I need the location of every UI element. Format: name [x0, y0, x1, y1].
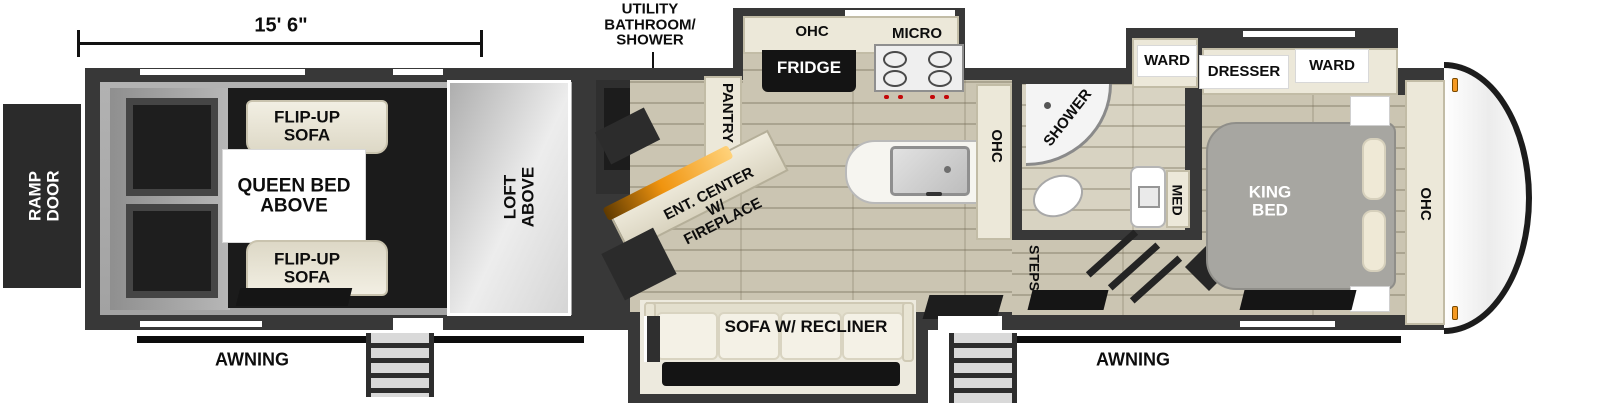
awning-bar-left — [137, 336, 584, 343]
bedroom-ohc-label: OHC — [1417, 187, 1433, 220]
stove-knob — [944, 95, 949, 99]
king-bed-label: KING BED — [1239, 183, 1301, 218]
stove-knob — [898, 95, 903, 99]
nightstand-top — [1350, 96, 1390, 126]
steps-label: STEPS — [1027, 245, 1042, 291]
awning-bar-right — [1017, 336, 1401, 343]
garage-door-gap — [393, 318, 443, 330]
window-gap — [1240, 321, 1335, 327]
ramp-window-bottom — [126, 204, 218, 298]
stove-knob — [930, 95, 935, 99]
bath-vanity-sink — [1138, 186, 1160, 208]
stove-burner — [883, 70, 907, 87]
sink-faucet — [926, 192, 942, 196]
queen-bed-label: QUEEN BED ABOVE — [232, 176, 356, 216]
flip-up-sofa-top-label: FLIP-UP SOFA — [261, 108, 353, 143]
dimension-tick-right — [480, 30, 483, 57]
loft-label: LOFT ABOVE — [501, 161, 536, 233]
window-gap — [1243, 31, 1355, 37]
clearance-light-top — [1452, 78, 1458, 92]
pantry-label: PANTRY — [719, 83, 735, 143]
fridge-label: FRIDGE — [777, 59, 841, 77]
micro-label: MICRO — [892, 26, 942, 42]
bed-pillow-top — [1362, 138, 1386, 200]
sofa-rug — [662, 362, 900, 386]
dimension-line — [77, 42, 483, 45]
clearance-light-bottom — [1452, 306, 1458, 320]
garage-entry-mat — [236, 288, 352, 306]
rv-floorplan: 15' 6" UTILITY BATHROOM/ SHOWER RAMP DOO… — [0, 0, 1600, 411]
bath-ward-label: WARD — [1144, 53, 1190, 69]
flip-up-sofa-bottom-label: FLIP-UP SOFA — [261, 250, 353, 285]
window-gap — [140, 69, 305, 75]
awning-right-label: AWNING — [1096, 351, 1170, 370]
entry-steps-main — [949, 333, 1017, 403]
stove-burner — [928, 70, 952, 87]
entry-steps-garage — [366, 333, 434, 397]
stove-burner — [928, 51, 952, 68]
shower-drain — [1044, 102, 1051, 109]
stove-burner — [883, 51, 907, 68]
sofa-label: SOFA W/ RECLINER — [725, 318, 888, 336]
med-label: MED — [1170, 184, 1185, 215]
utility-bathroom-label: UTILITY BATHROOM/ SHOWER — [587, 2, 713, 49]
ramp-window-top — [126, 98, 218, 196]
window-gap — [845, 10, 955, 16]
dresser-label: DRESSER — [1208, 64, 1281, 80]
stove — [874, 44, 964, 92]
kitchen-ohc-side-label: OHC — [988, 129, 1004, 162]
awning-left-label: AWNING — [215, 351, 289, 370]
sink-drain — [944, 166, 951, 173]
front-cap — [1444, 62, 1532, 334]
kitchen-sink — [890, 146, 970, 196]
slide-window-left — [644, 316, 660, 362]
bedroom-ward-label: WARD — [1309, 58, 1355, 74]
kitchen-ohc-label: OHC — [795, 24, 828, 40]
bed-pillow-bottom — [1362, 210, 1386, 272]
garage-length-label: 15' 6" — [254, 16, 307, 37]
bedroom-mat — [1240, 290, 1357, 310]
hall-entry-mat — [1028, 290, 1109, 310]
entry-door-gap — [938, 316, 1002, 330]
dimension-tick-left — [77, 30, 80, 57]
stove-knob — [884, 95, 889, 99]
window-gap — [393, 69, 443, 75]
sofa-cushion — [656, 312, 718, 360]
ramp-door-label: RAMP DOOR — [26, 165, 61, 227]
window-gap — [140, 321, 262, 327]
sofa-armrest-right — [902, 302, 914, 362]
